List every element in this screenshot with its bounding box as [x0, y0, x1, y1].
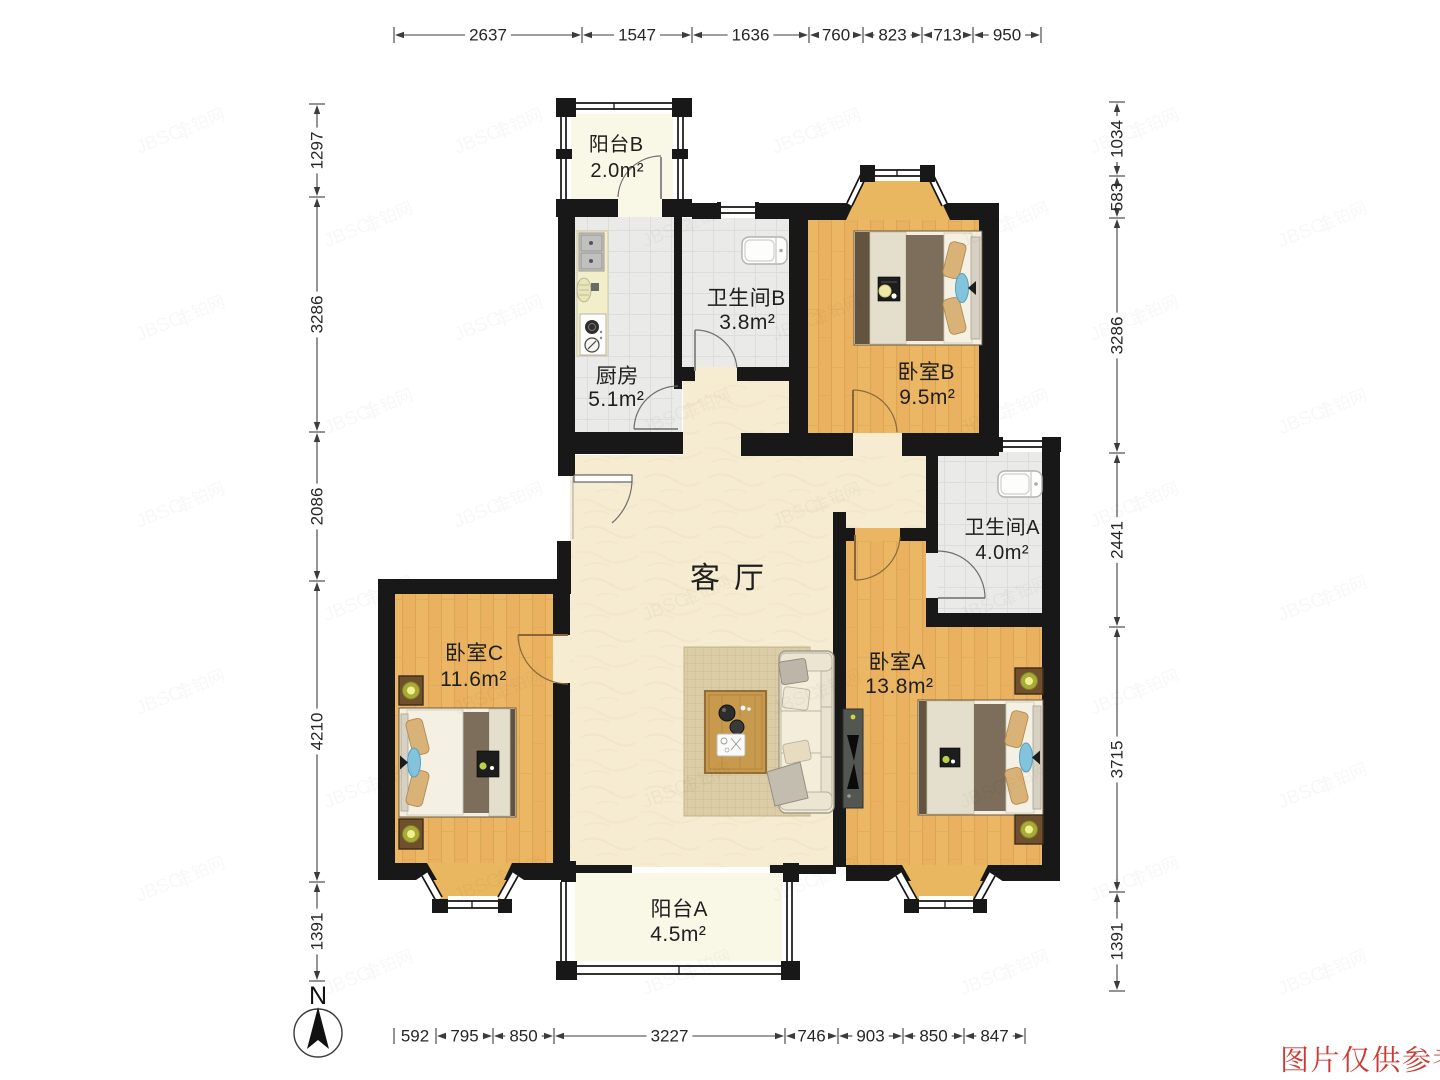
svg-text:A: A	[912, 651, 927, 674]
svg-text:4.0m²: 4.0m²	[975, 542, 1029, 564]
svg-text:9.5m²: 9.5m²	[899, 386, 955, 409]
svg-text:B: B	[771, 287, 786, 310]
svg-text:847: 847	[980, 1027, 1008, 1046]
svg-text:1547: 1547	[618, 26, 656, 45]
svg-text:2637: 2637	[469, 26, 507, 45]
svg-text:4.5m²: 4.5m²	[650, 923, 706, 946]
svg-text:592: 592	[401, 1027, 429, 1046]
svg-text:3286: 3286	[308, 296, 327, 334]
svg-text:5.1m²: 5.1m²	[588, 388, 644, 411]
svg-text:4210: 4210	[308, 713, 327, 751]
svg-text:713: 713	[933, 26, 961, 45]
svg-text:850: 850	[509, 1027, 537, 1046]
svg-text:A: A	[1026, 517, 1040, 539]
svg-text:2086: 2086	[308, 488, 327, 526]
svg-text:850: 850	[919, 1027, 947, 1046]
svg-text:823: 823	[878, 26, 906, 45]
svg-text:3715: 3715	[1108, 741, 1127, 779]
svg-text:1391: 1391	[1108, 923, 1127, 961]
svg-text:746: 746	[797, 1027, 825, 1046]
svg-text:2.0m²: 2.0m²	[590, 160, 644, 182]
svg-text:C: C	[488, 642, 504, 665]
svg-text:1391: 1391	[308, 913, 327, 951]
svg-text:950: 950	[993, 26, 1021, 45]
svg-text:795: 795	[450, 1027, 478, 1046]
svg-text:1297: 1297	[308, 132, 327, 170]
svg-text:760: 760	[822, 26, 850, 45]
svg-text:B: B	[941, 361, 956, 384]
svg-text:B: B	[630, 134, 644, 156]
svg-text:1636: 1636	[732, 26, 770, 45]
svg-text:3.8m²: 3.8m²	[719, 311, 775, 334]
svg-text:903: 903	[856, 1027, 884, 1046]
svg-text:A: A	[694, 898, 709, 921]
svg-text:2441: 2441	[1108, 521, 1127, 559]
svg-text:583: 583	[1108, 183, 1127, 211]
svg-text:13.8m²: 13.8m²	[865, 675, 933, 698]
svg-text:3227: 3227	[651, 1027, 689, 1046]
